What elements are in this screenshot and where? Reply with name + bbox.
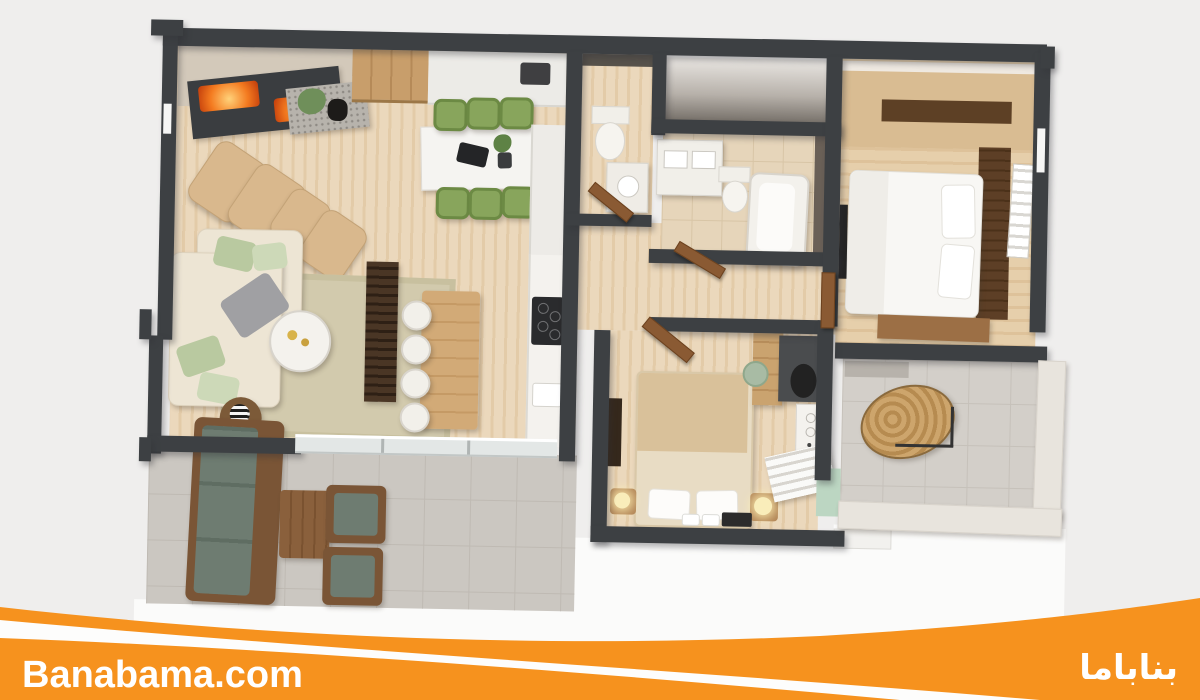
site-url-watermark: Banabama.com	[22, 654, 303, 697]
site-name-farsi-watermark: بناباما	[1079, 648, 1178, 688]
screenshot-canvas: Banabama.com بناباما	[0, 0, 1200, 700]
watermark-banner	[0, 0, 1200, 700]
